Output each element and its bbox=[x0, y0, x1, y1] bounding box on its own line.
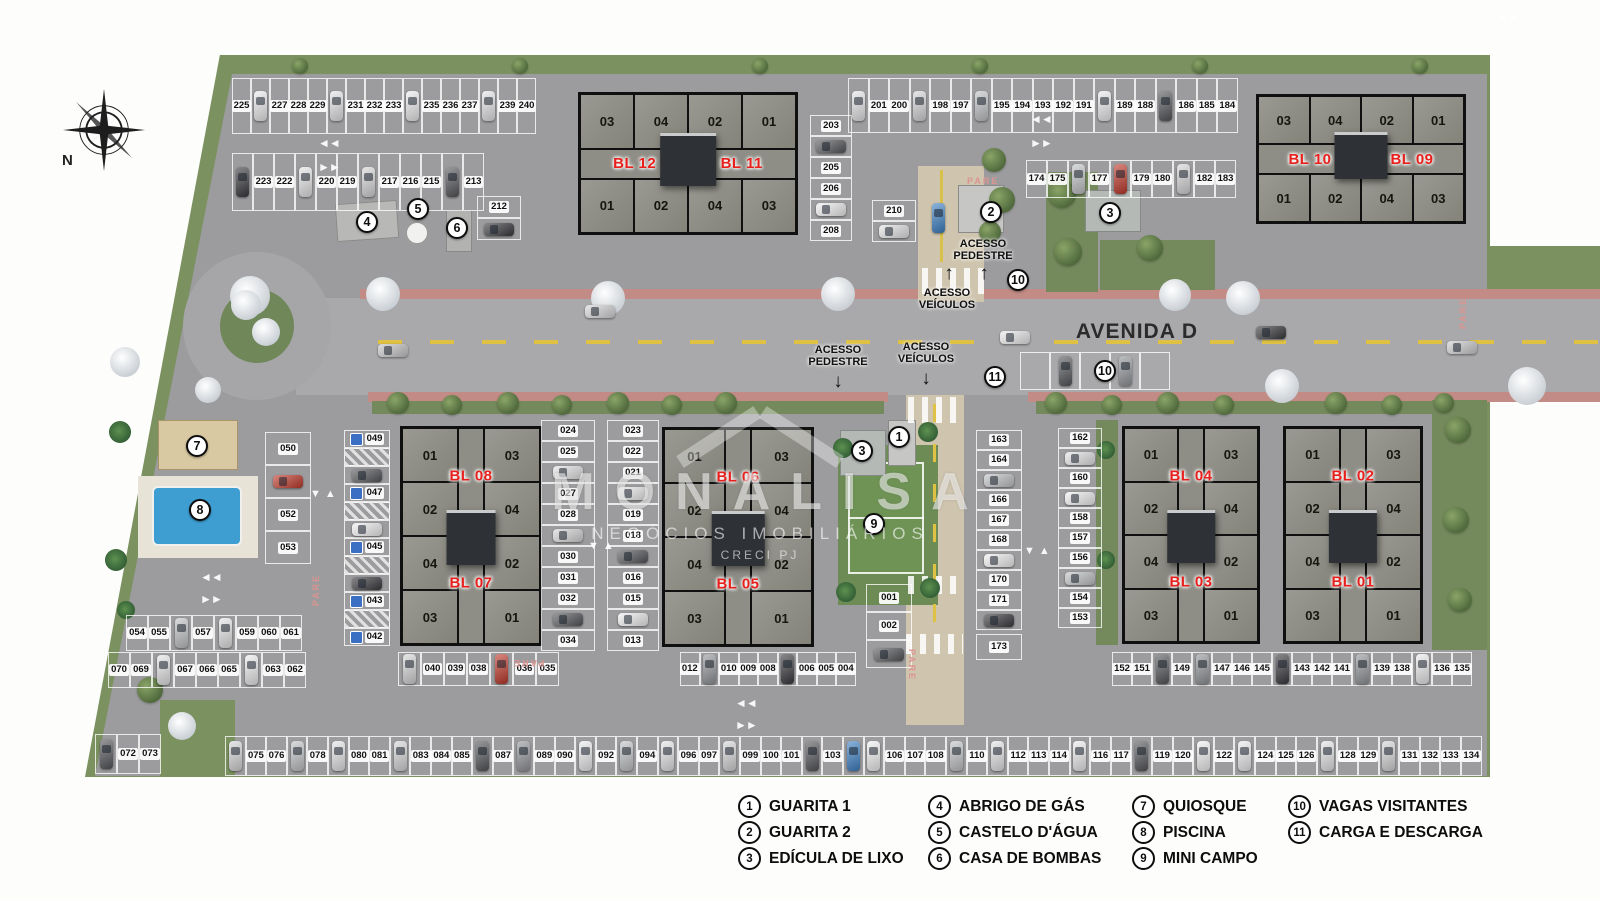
shrub bbox=[512, 58, 528, 74]
parking-stall: 134 bbox=[1461, 736, 1482, 776]
car bbox=[219, 618, 232, 648]
building-label: BL 06 bbox=[665, 469, 811, 486]
acesso-pedestre-north: ACESSOPEDESTRE bbox=[953, 238, 1012, 263]
parking-stall bbox=[295, 153, 316, 211]
building-core bbox=[447, 510, 496, 564]
parking-stall: 129 bbox=[1358, 736, 1379, 776]
stall-number: 237 bbox=[460, 100, 480, 112]
stall-number: 101 bbox=[782, 750, 802, 762]
stall-number: 016 bbox=[623, 572, 643, 584]
parking-stall: 099 bbox=[740, 736, 761, 776]
parking-stall: 208 bbox=[810, 220, 852, 241]
legend-label: CASTELO D'ÁGUA bbox=[959, 824, 1098, 842]
car bbox=[781, 654, 794, 684]
car bbox=[852, 91, 865, 121]
car bbox=[254, 91, 267, 121]
flowering-tree bbox=[110, 347, 140, 377]
car bbox=[1119, 356, 1132, 386]
parking-stall: 128 bbox=[1337, 736, 1358, 776]
shrub bbox=[972, 58, 988, 74]
legend-item-1: 1GUARITA 1 bbox=[738, 795, 851, 818]
stall-number: 139 bbox=[1372, 663, 1392, 675]
parking-stall: 084 bbox=[431, 736, 452, 776]
car bbox=[1356, 654, 1369, 684]
unit-01: 01 bbox=[581, 180, 633, 233]
pare-road-marking: PARE bbox=[907, 649, 917, 681]
stall-number: 203 bbox=[821, 120, 841, 132]
parking-stall bbox=[472, 736, 493, 776]
stall-number: 153 bbox=[1070, 612, 1090, 624]
parking-stall bbox=[848, 78, 869, 133]
callout-7: 7 bbox=[186, 435, 208, 457]
car bbox=[1321, 741, 1334, 771]
flowering-tree bbox=[1159, 279, 1191, 311]
stall-number: 160 bbox=[1070, 472, 1090, 484]
building-label: BL 07 bbox=[403, 575, 539, 592]
acesso-pedestre-south: ACESSOPEDESTRE bbox=[808, 344, 867, 369]
car-windshield bbox=[358, 579, 366, 588]
stall-number: 166 bbox=[989, 494, 1009, 506]
shrub bbox=[1045, 392, 1067, 414]
stall-number: 197 bbox=[951, 100, 971, 112]
stall-number: 067 bbox=[175, 664, 195, 676]
parking-stall: 179 bbox=[1131, 160, 1152, 198]
parking-stall: 006 bbox=[797, 652, 817, 686]
car bbox=[703, 654, 716, 684]
stall-number: 171 bbox=[989, 594, 1009, 606]
lane-chevron-icon: ►► bbox=[1497, 10, 1519, 24]
stall-number: 097 bbox=[699, 750, 719, 762]
parking-stall: 092 bbox=[596, 736, 617, 776]
car-windshield bbox=[478, 747, 487, 755]
stall-number: 164 bbox=[989, 454, 1009, 466]
stall-number: 084 bbox=[431, 750, 451, 762]
unit-01: 01 bbox=[743, 95, 795, 148]
unit-03: 03 bbox=[665, 592, 724, 644]
car bbox=[806, 741, 819, 771]
parking-stall: 217 bbox=[379, 153, 400, 211]
stall-number: 083 bbox=[411, 750, 431, 762]
legend-label: MINI CAMPO bbox=[1163, 850, 1258, 868]
car bbox=[273, 475, 303, 488]
stall-number: 001 bbox=[879, 592, 899, 604]
car bbox=[1177, 164, 1190, 194]
shrub bbox=[1412, 58, 1428, 74]
lane-chevron-icon: ◄◄ bbox=[318, 136, 340, 150]
car bbox=[816, 203, 846, 216]
stall-number: 233 bbox=[384, 100, 404, 112]
parking-stall: 225 bbox=[232, 78, 251, 134]
car bbox=[157, 655, 170, 685]
stall-number: 232 bbox=[365, 100, 385, 112]
stall-number: 094 bbox=[637, 750, 657, 762]
stall-number: 008 bbox=[758, 663, 778, 675]
unit-03: 03 bbox=[1125, 590, 1177, 642]
stall-number: 113 bbox=[1029, 750, 1048, 762]
car bbox=[100, 739, 113, 769]
parking-stall: 066 bbox=[196, 652, 218, 688]
parking-stall: 203 bbox=[810, 115, 852, 136]
parking-stall bbox=[152, 652, 174, 688]
parking-stall bbox=[1193, 736, 1214, 776]
car bbox=[1156, 654, 1169, 684]
parking-stall: 019 bbox=[607, 504, 659, 525]
car-windshield bbox=[238, 173, 247, 181]
parking-stall bbox=[541, 525, 595, 546]
unit-01: 01 bbox=[1259, 175, 1309, 221]
stall-number: 002 bbox=[879, 620, 899, 632]
car-windshield bbox=[301, 173, 310, 181]
parking-stall: 239 bbox=[498, 78, 517, 134]
car-windshield bbox=[880, 650, 888, 659]
car bbox=[1072, 164, 1085, 194]
shrub bbox=[1157, 392, 1179, 414]
unit-04: 04 bbox=[689, 180, 741, 233]
parking-stall: 131 bbox=[1399, 736, 1420, 776]
parking-stall bbox=[358, 153, 379, 211]
car-on-road bbox=[932, 203, 945, 233]
car-on-road bbox=[1447, 341, 1477, 354]
parking-stall bbox=[1192, 652, 1212, 686]
stall-number: 217 bbox=[380, 176, 400, 188]
car-windshield bbox=[1278, 660, 1287, 668]
parking-stall bbox=[344, 520, 390, 538]
pare-road-marking: PARE bbox=[311, 574, 321, 606]
car-windshield bbox=[1323, 747, 1332, 755]
parking-stall: 108 bbox=[925, 736, 946, 776]
car-windshield bbox=[1116, 170, 1125, 178]
stall-number: 114 bbox=[1050, 750, 1069, 762]
lane-chevron-icon: ►► bbox=[200, 592, 222, 606]
stall-number: 087 bbox=[493, 750, 513, 762]
flowering-tree bbox=[252, 318, 280, 346]
car-windshield bbox=[808, 747, 817, 755]
parking-stall: 138 bbox=[1392, 652, 1412, 686]
car-windshield bbox=[952, 747, 961, 755]
car-windshield bbox=[247, 661, 256, 669]
accessible-parking-icon bbox=[350, 487, 363, 500]
parking-stall: 195 bbox=[992, 78, 1013, 133]
parking-stall bbox=[1234, 736, 1255, 776]
parking-stall: 021 bbox=[607, 462, 659, 483]
stall-number: 142 bbox=[1312, 663, 1332, 675]
parking-stall: 141 bbox=[1332, 652, 1352, 686]
parking-stall bbox=[1140, 352, 1170, 390]
stall-number: 090 bbox=[555, 750, 575, 762]
car-windshield bbox=[334, 747, 343, 755]
car bbox=[236, 167, 249, 197]
parking-stall bbox=[1131, 736, 1152, 776]
car-windshield bbox=[1100, 97, 1109, 105]
parking-stall: 231 bbox=[346, 78, 365, 134]
car-windshield bbox=[783, 660, 792, 668]
callout-6: 6 bbox=[446, 217, 468, 239]
car-windshield bbox=[332, 97, 341, 105]
callout-4: 4 bbox=[356, 211, 378, 233]
parking-stall: 038 bbox=[467, 652, 490, 686]
parking-stall: 053 bbox=[265, 531, 311, 564]
parking-stall: 065 bbox=[218, 652, 240, 688]
parking-stall: 070 bbox=[108, 652, 130, 688]
parking-stall: 024 bbox=[541, 420, 595, 441]
parking-stall: 004 bbox=[836, 652, 856, 686]
stall-number: 229 bbox=[308, 100, 328, 112]
stall-number: 057 bbox=[193, 627, 213, 639]
parking-stall: 170 bbox=[976, 570, 1022, 590]
car-windshield bbox=[1075, 747, 1084, 755]
car-windshield bbox=[1061, 362, 1070, 370]
parking-stall bbox=[265, 465, 311, 498]
car-windshield bbox=[1158, 660, 1167, 668]
legend-label: QUIOSQUE bbox=[1163, 798, 1247, 816]
car bbox=[1196, 654, 1209, 684]
parking-stall: 096 bbox=[678, 736, 699, 776]
shrub bbox=[1192, 58, 1208, 74]
car bbox=[1416, 654, 1429, 684]
callout-3-north: 3 bbox=[1099, 202, 1121, 224]
building-BL08-BL07: 0103020404020301BL 08BL 07 bbox=[400, 426, 542, 646]
shrub bbox=[752, 58, 768, 74]
stall-number: 062 bbox=[285, 664, 305, 676]
accessible-parking-icon bbox=[350, 433, 363, 446]
stall-number: 112 bbox=[1008, 750, 1027, 762]
stall-number: 138 bbox=[1392, 663, 1412, 675]
shrub bbox=[442, 395, 462, 415]
stall-number: 059 bbox=[237, 627, 257, 639]
parking-stall: 039 bbox=[444, 652, 467, 686]
stall-number: 031 bbox=[558, 572, 578, 584]
car-windshield bbox=[1384, 747, 1393, 755]
legend-item-4: 4ABRIGO DE GÁS bbox=[928, 795, 1085, 818]
legend-item-8: 8PISCINA bbox=[1132, 821, 1226, 844]
car-windshield bbox=[725, 747, 734, 755]
parking-stall bbox=[971, 78, 992, 133]
stall-number: 135 bbox=[1452, 663, 1472, 675]
parking-stall: 034 bbox=[541, 630, 595, 651]
parking-stall: 132 bbox=[1420, 736, 1441, 776]
parking-stall: 201 bbox=[869, 78, 890, 133]
callout-10-south: 10 bbox=[1094, 360, 1116, 382]
stall-number: 198 bbox=[930, 100, 950, 112]
car bbox=[1238, 741, 1251, 771]
flowering-tree bbox=[1226, 281, 1260, 315]
pare-road-marking: PARE bbox=[512, 658, 544, 668]
car bbox=[618, 550, 648, 563]
parking-stall bbox=[287, 736, 308, 776]
car-windshield bbox=[624, 615, 632, 624]
unit-03: 03 bbox=[581, 95, 633, 148]
legend-number: 3 bbox=[738, 847, 761, 870]
legend-number: 6 bbox=[928, 847, 951, 870]
stall-number: 055 bbox=[149, 627, 169, 639]
parking-stall bbox=[976, 470, 1022, 490]
parking-stall: 185 bbox=[1197, 78, 1218, 133]
car-windshield bbox=[990, 476, 998, 485]
car-windshield bbox=[279, 477, 287, 486]
parking-stall: 090 bbox=[555, 736, 576, 776]
parking-stall bbox=[232, 153, 253, 211]
stall-number: 210 bbox=[884, 205, 904, 217]
parking-stall bbox=[1020, 352, 1050, 390]
stall-number: 131 bbox=[1400, 750, 1420, 762]
legend-label: GUARITA 1 bbox=[769, 798, 851, 816]
car-windshield bbox=[490, 225, 498, 234]
parking-stall bbox=[1058, 448, 1102, 468]
legend-item-10: 10VAGAS VISITANTES bbox=[1288, 795, 1467, 818]
parking-stall bbox=[490, 652, 513, 686]
legend-label: VAGAS VISITANTES bbox=[1319, 798, 1467, 816]
building-BL04-BL03: 0103020404020301BL 04BL 03 bbox=[1122, 426, 1260, 644]
parking-stall bbox=[976, 610, 1022, 630]
stall-number: 120 bbox=[1173, 750, 1193, 762]
parking-stall: 126 bbox=[1296, 736, 1317, 776]
building-label: BL 10 bbox=[1288, 151, 1331, 168]
stall-number: 149 bbox=[1172, 663, 1192, 675]
stall-number: 145 bbox=[1252, 663, 1272, 675]
stall-number: 170 bbox=[989, 574, 1009, 586]
parking-stall: 227 bbox=[270, 78, 289, 134]
legend-number: 7 bbox=[1132, 795, 1155, 818]
stall-number: 239 bbox=[498, 100, 518, 112]
avenue-centerline bbox=[378, 340, 1600, 344]
stall-number: 015 bbox=[623, 593, 643, 605]
building-label: BL 05 bbox=[665, 576, 811, 593]
parking-stall bbox=[1068, 160, 1089, 198]
stall-number: 152 bbox=[1112, 663, 1132, 675]
stall-number: 236 bbox=[441, 100, 461, 112]
parking-stall: 106 bbox=[884, 736, 905, 776]
parking-stall bbox=[1152, 652, 1172, 686]
car bbox=[553, 529, 583, 542]
car-windshield bbox=[358, 525, 366, 534]
car bbox=[362, 167, 375, 197]
car bbox=[245, 655, 258, 685]
stall-number: 222 bbox=[275, 176, 295, 188]
stall-number: 027 bbox=[558, 488, 578, 500]
legend-number: 8 bbox=[1132, 821, 1155, 844]
stall-number: 157 bbox=[1070, 532, 1090, 544]
stall-number: 106 bbox=[885, 750, 905, 762]
crosswalk-avenue-south bbox=[908, 397, 964, 423]
unit-03: 03 bbox=[403, 591, 457, 643]
parking-stall: 164 bbox=[976, 450, 1022, 470]
parking-stall: 186 bbox=[1176, 78, 1197, 133]
car-windshield bbox=[384, 346, 392, 355]
palm-tree bbox=[105, 549, 127, 571]
shrub bbox=[1102, 395, 1122, 415]
parking-stall: 027 bbox=[541, 483, 595, 504]
car bbox=[1382, 741, 1395, 771]
parking-stall bbox=[479, 78, 498, 134]
parking-stall bbox=[1110, 160, 1131, 198]
callout-2: 2 bbox=[980, 201, 1002, 223]
car-windshield bbox=[993, 747, 1002, 755]
car-windshield bbox=[396, 747, 405, 755]
car-windshield bbox=[663, 747, 672, 755]
parking-stall: 212 bbox=[477, 196, 521, 218]
shrub bbox=[607, 392, 629, 414]
car bbox=[1098, 91, 1111, 121]
car-windshield bbox=[1161, 97, 1170, 105]
minicampo-midline bbox=[848, 517, 924, 519]
parking-stall bbox=[976, 550, 1022, 570]
parking-stall bbox=[1070, 736, 1091, 776]
stall-number: 205 bbox=[821, 162, 841, 174]
car-windshield bbox=[1240, 747, 1249, 755]
car-windshield bbox=[484, 97, 493, 105]
callout-11: 11 bbox=[984, 366, 1006, 388]
parking-stall: 001 bbox=[866, 584, 912, 612]
shrub bbox=[1137, 235, 1163, 261]
parking-stall: 120 bbox=[1173, 736, 1194, 776]
car-windshield bbox=[1071, 454, 1079, 463]
car-windshield bbox=[1198, 660, 1207, 668]
stall-number: 076 bbox=[267, 750, 287, 762]
parking-stall: 030 bbox=[541, 546, 595, 567]
shrub bbox=[497, 392, 519, 414]
parking-stall: 153 bbox=[1058, 608, 1102, 628]
stall-number: 180 bbox=[1153, 173, 1173, 185]
car bbox=[484, 223, 514, 236]
stall-number: 050 bbox=[278, 443, 298, 455]
car bbox=[553, 613, 583, 626]
flowering-tree bbox=[195, 377, 221, 403]
stall-number: 184 bbox=[1217, 100, 1237, 112]
stall-number: 213 bbox=[464, 176, 484, 188]
parking-stall bbox=[403, 78, 422, 134]
parking-stall bbox=[477, 218, 521, 240]
parking-stall: 116 bbox=[1090, 736, 1111, 776]
parking-stall bbox=[1412, 652, 1432, 686]
stall-number: 043 bbox=[365, 595, 385, 607]
pare-road-marking: PARE bbox=[1458, 297, 1468, 329]
legend-label: CASA DE BOMBAS bbox=[959, 850, 1101, 868]
parking-stall bbox=[810, 199, 852, 220]
parking-stall: 032 bbox=[541, 588, 595, 609]
building-label: BL 01 bbox=[1286, 573, 1420, 590]
parking-stall bbox=[575, 736, 596, 776]
car bbox=[352, 469, 382, 482]
palm-tree bbox=[836, 582, 856, 602]
stall-number: 069 bbox=[131, 664, 151, 676]
parking-stall: 085 bbox=[452, 736, 473, 776]
parking-stall: 005 bbox=[817, 652, 837, 686]
parking-stall: 012 bbox=[680, 652, 700, 686]
car bbox=[618, 613, 648, 626]
parking-stall bbox=[658, 736, 679, 776]
parking-stall bbox=[541, 462, 595, 483]
stall-number: 201 bbox=[869, 100, 889, 112]
parking-stall bbox=[390, 736, 411, 776]
flowering-tree bbox=[1265, 369, 1299, 403]
palm-tree bbox=[920, 578, 940, 598]
parking-stall bbox=[1173, 160, 1194, 198]
parking-stall: 076 bbox=[266, 736, 287, 776]
parking-stall bbox=[541, 609, 595, 630]
unit-04: 04 bbox=[1362, 175, 1412, 221]
stall-number: 162 bbox=[1070, 432, 1090, 444]
stall-number: 040 bbox=[423, 663, 443, 675]
car-windshield bbox=[559, 531, 567, 540]
car-windshield bbox=[497, 660, 506, 668]
stall-number: 103 bbox=[823, 750, 843, 762]
car bbox=[517, 741, 530, 771]
car-on-road bbox=[585, 305, 615, 318]
parking-stall bbox=[607, 609, 659, 630]
car bbox=[816, 140, 846, 153]
building-core bbox=[660, 133, 716, 185]
stall-number: 174 bbox=[1027, 173, 1047, 185]
